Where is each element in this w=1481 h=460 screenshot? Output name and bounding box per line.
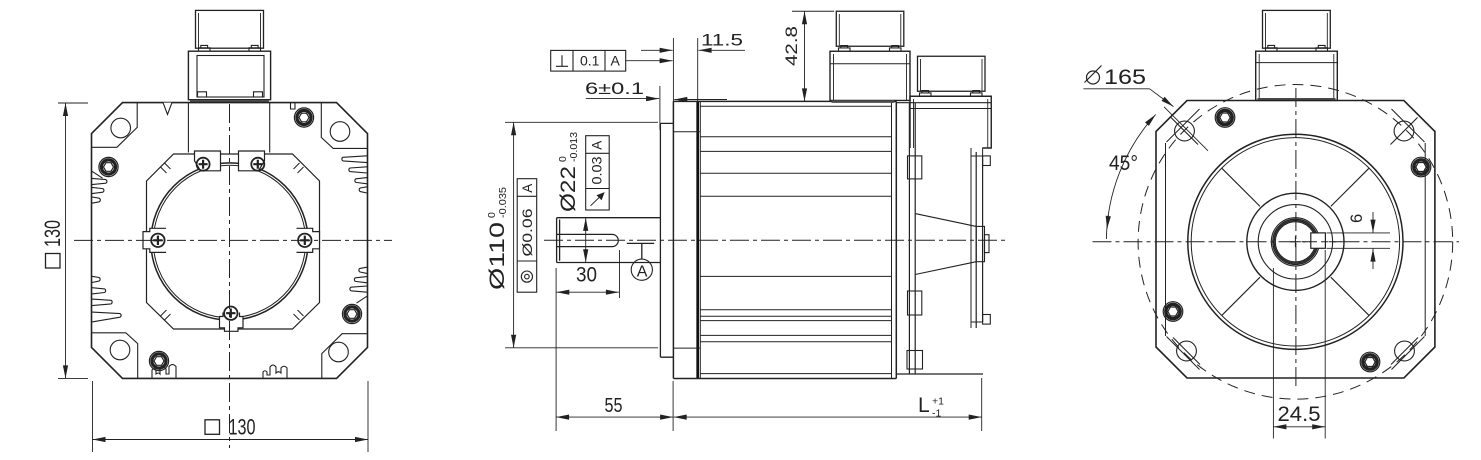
svg-text:24.5: 24.5 [1278,403,1321,426]
svg-text:A: A [590,141,605,150]
svg-text:130: 130 [229,415,256,440]
svg-text:30: 30 [576,264,597,287]
svg-text:A: A [520,184,535,193]
svg-text:-0.035: -0.035 [497,187,509,218]
svg-text:165: 165 [1104,66,1146,89]
svg-text:55: 55 [605,395,623,417]
svg-text:L: L [918,394,930,417]
svg-text:6: 6 [1348,214,1366,223]
svg-text:45°: 45° [1109,152,1138,175]
svg-text:130: 130 [40,220,65,247]
svg-text:-0.013: -0.013 [568,132,580,162]
svg-text:11.5: 11.5 [701,32,743,50]
svg-text:A: A [637,264,648,281]
svg-text:+1: +1 [932,396,944,408]
svg-text:A: A [611,53,621,69]
svg-text:0.1: 0.1 [580,53,600,69]
svg-text:Ø110: Ø110 [486,222,509,290]
svg-text:42.8: 42.8 [783,26,801,66]
svg-text:Ø22: Ø22 [557,166,580,212]
svg-text:6±0.1: 6±0.1 [585,80,644,98]
svg-text:-1: -1 [932,408,941,420]
svg-text:0.03: 0.03 [590,157,605,185]
svg-text:Ø0.06: Ø0.06 [520,209,535,257]
